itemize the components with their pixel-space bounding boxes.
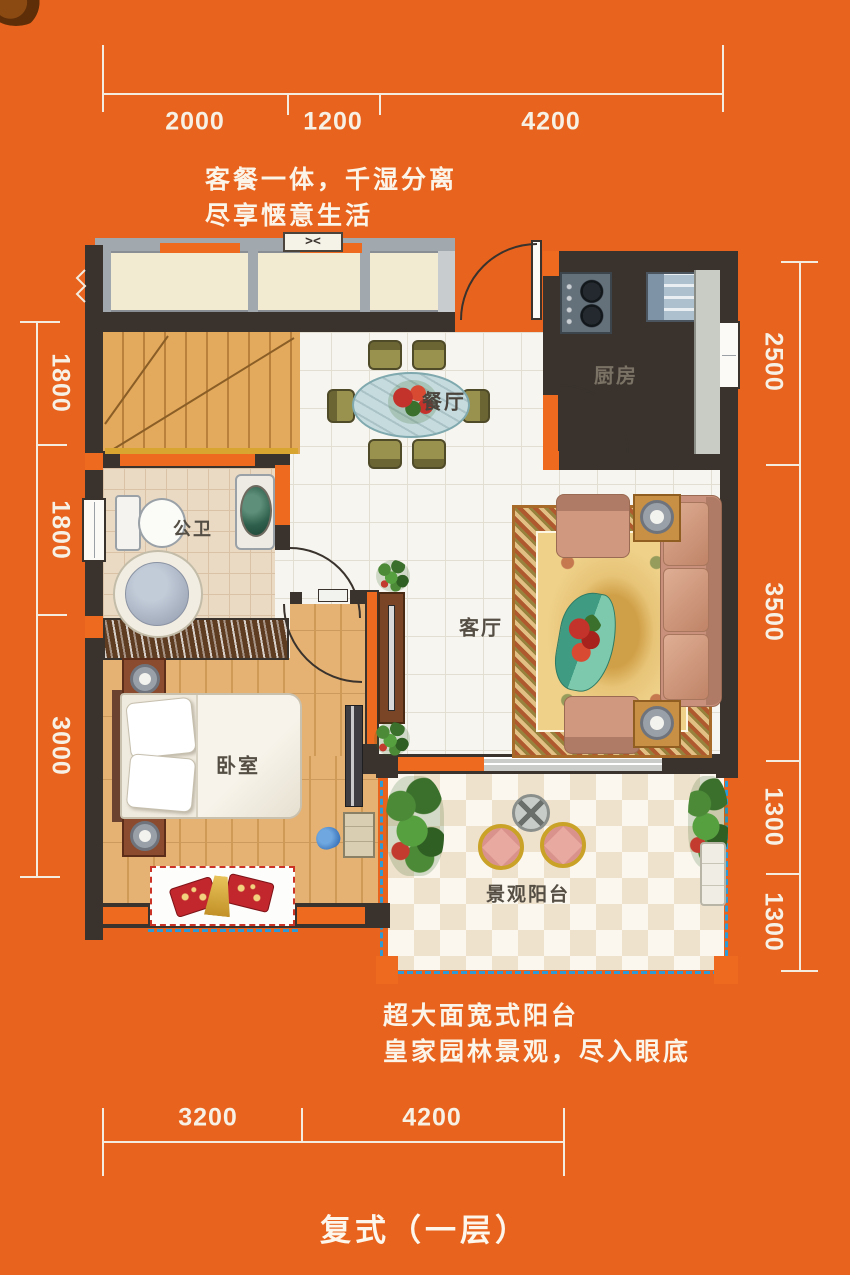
entry-door-leaf <box>531 240 542 320</box>
dim-left-1800b: 1800 <box>46 500 75 560</box>
sofa-cushion-2 <box>663 568 709 632</box>
bay-window-blue-edge <box>148 926 298 932</box>
bottom-marketing-text: 超大面宽式阳台 皇家园林景观，尽入眼底 <box>383 998 691 1070</box>
plan-title: 复式（一层） <box>0 1205 850 1250</box>
dim-left-1800a: 1800 <box>46 353 75 413</box>
plant-tv-bottom <box>374 722 410 756</box>
bottom-marketing-line2: 皇家园林景观，尽入眼底 <box>383 1034 691 1070</box>
bathtub-water <box>125 562 189 626</box>
sofa-cushion-3 <box>663 634 709 700</box>
dim-bottom-4200: 4200 <box>402 1104 462 1133</box>
living-tv-screen <box>388 605 395 711</box>
dim-left-3000: 3000 <box>46 716 75 776</box>
bed-pillow-2 <box>126 753 196 813</box>
lamp-bottom <box>640 706 674 740</box>
lamp-top <box>640 500 674 534</box>
dim-top-1200: 1200 <box>303 108 363 137</box>
label-dining: 餐厅 <box>422 386 466 415</box>
dim-right-1300b: 1300 <box>759 892 788 952</box>
balcony-table <box>512 794 550 832</box>
coffee-table-flowers <box>566 612 604 668</box>
bedroom-tv <box>345 705 363 807</box>
kitchen-counter <box>694 270 720 454</box>
refrigerator <box>646 272 698 322</box>
floorplan-page: { "title": "复式（一层）", "marketing_text": {… <box>0 0 850 1275</box>
dim-top-4200: 4200 <box>521 108 581 137</box>
bedroom-cabinet <box>343 812 375 858</box>
bed-pillow-1 <box>125 697 196 760</box>
top-marketing-line2: 尽享惬意生活 <box>205 198 457 234</box>
dim-top-2000: 2000 <box>165 108 225 137</box>
corner-ornament <box>0 0 44 26</box>
armchair-bottom <box>564 696 640 754</box>
stove <box>560 272 612 334</box>
label-living: 客厅 <box>459 612 503 641</box>
staircase <box>103 332 300 454</box>
kitchen-window <box>718 321 740 389</box>
dim-right-2500: 2500 <box>759 332 788 392</box>
dim-right-1300a: 1300 <box>759 787 788 847</box>
wall-break-symbol <box>77 270 85 302</box>
dim-right-3500: 3500 <box>759 582 788 642</box>
vent-symbol: >< <box>305 234 321 249</box>
bottom-marketing-line1: 超大面宽式阳台 <box>383 998 691 1034</box>
balcony-chair-1 <box>478 824 524 870</box>
label-bedroom: 卧室 <box>216 750 260 779</box>
left-wall-window <box>82 498 106 562</box>
label-bathroom: 公卫 <box>173 515 213 541</box>
entry-door-arc <box>461 244 537 320</box>
top-marketing-line1: 客餐一体，千湿分离 <box>205 162 457 198</box>
vent-symbol-box: >< <box>283 232 343 252</box>
label-balcony: 景观阳台 <box>486 880 570 907</box>
balcony-bench <box>700 842 726 906</box>
plant-tv-top <box>376 560 410 592</box>
washbasin <box>240 485 272 537</box>
balcony-chair-2 <box>540 822 586 868</box>
top-marketing-text: 客餐一体，千湿分离 尽享惬意生活 <box>205 162 457 234</box>
armchair-top <box>556 494 630 558</box>
dim-bottom-3200: 3200 <box>178 1104 238 1133</box>
balcony-plant-left <box>386 776 444 876</box>
label-kitchen: 厨房 <box>594 360 638 389</box>
